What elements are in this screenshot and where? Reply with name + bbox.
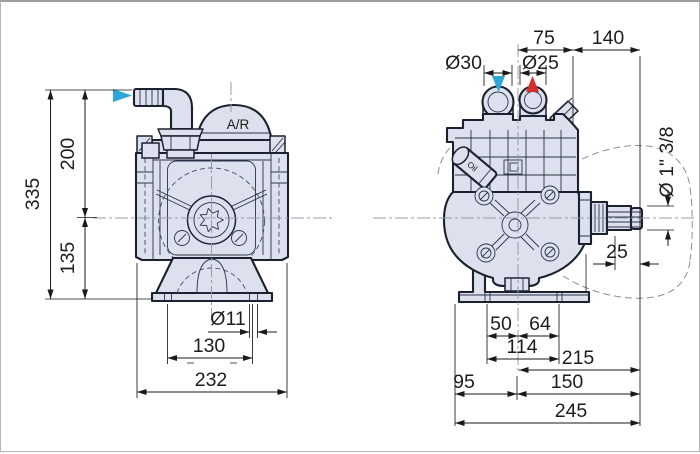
dim-center-to-edge-label: 75 (533, 27, 555, 49)
dim-foot-slot-span-label: 130 (193, 335, 226, 357)
dim-suction-diameter-label: Ø30 (445, 52, 482, 74)
dim-overall-height: 335 (22, 90, 51, 299)
dim-foot-left-label: 50 (490, 313, 512, 335)
technical-drawing-canvas: A/R 335 200 135 (0, 0, 700, 452)
drain-plug (505, 278, 529, 291)
inlet-hose-barb (134, 89, 163, 106)
dim-spline-length: 25 (593, 236, 659, 270)
delivery-flow-arrow-icon (526, 76, 539, 92)
side-view: Oil (373, 27, 696, 426)
dim-foot-hole-label: Ø11 (210, 308, 245, 330)
dim-edge-to-shaft-end: 140 (573, 27, 640, 50)
dim-center-to-shaft-upper-label: 215 (562, 347, 595, 369)
dim-delivery-diameter: Ø25 (520, 52, 559, 85)
dim-foot-span: 114 (487, 336, 559, 359)
dim-center-to-shaft-end-label: 150 (551, 371, 584, 393)
air-chamber-label: A/R (227, 117, 250, 132)
suction-port (483, 87, 514, 118)
dim-overall-height-label: 335 (22, 178, 44, 211)
dim-inlet-height-label: 200 (57, 138, 79, 171)
pump-dimension-drawing: A/R 335 200 135 (1, 2, 700, 454)
dim-foot-right: 64 (518, 313, 559, 336)
dim-overall-length-label: 245 (555, 400, 588, 422)
dim-delivery-diameter-label: Ø25 (522, 52, 559, 74)
dim-center-to-shaft-end: 150 (517, 371, 640, 394)
dim-shaft-spec-label: Ø 1" 3/8 (656, 127, 678, 198)
dim-spline-length-label: 25 (606, 241, 628, 263)
dim-foot-span-label: 114 (506, 336, 537, 358)
dim-left-overhang-label: 95 (453, 371, 475, 393)
dim-foot-hole: Ø11 (208, 304, 277, 338)
inlet-elbow (163, 89, 192, 129)
dim-center-to-edge: 75 (518, 27, 573, 50)
inlet-flow-arrow-icon (113, 89, 132, 102)
dim-edge-to-shaft-end-label: 140 (592, 27, 625, 49)
front-view-body: A/R (93, 82, 333, 320)
crankcase-side (444, 192, 589, 286)
dim-axis-height-label: 135 (57, 242, 79, 275)
dim-inlet-height: 200 (57, 90, 85, 218)
dim-axis-height: 135 (57, 218, 85, 300)
dim-shaft-spec: Ø 1" 3/8 (647, 127, 678, 246)
front-view: A/R 335 200 135 (22, 82, 333, 398)
dim-overall-length: 245 (455, 400, 640, 423)
dim-foot-right-label: 64 (529, 313, 551, 335)
dim-overall-width-label: 232 (195, 369, 228, 391)
